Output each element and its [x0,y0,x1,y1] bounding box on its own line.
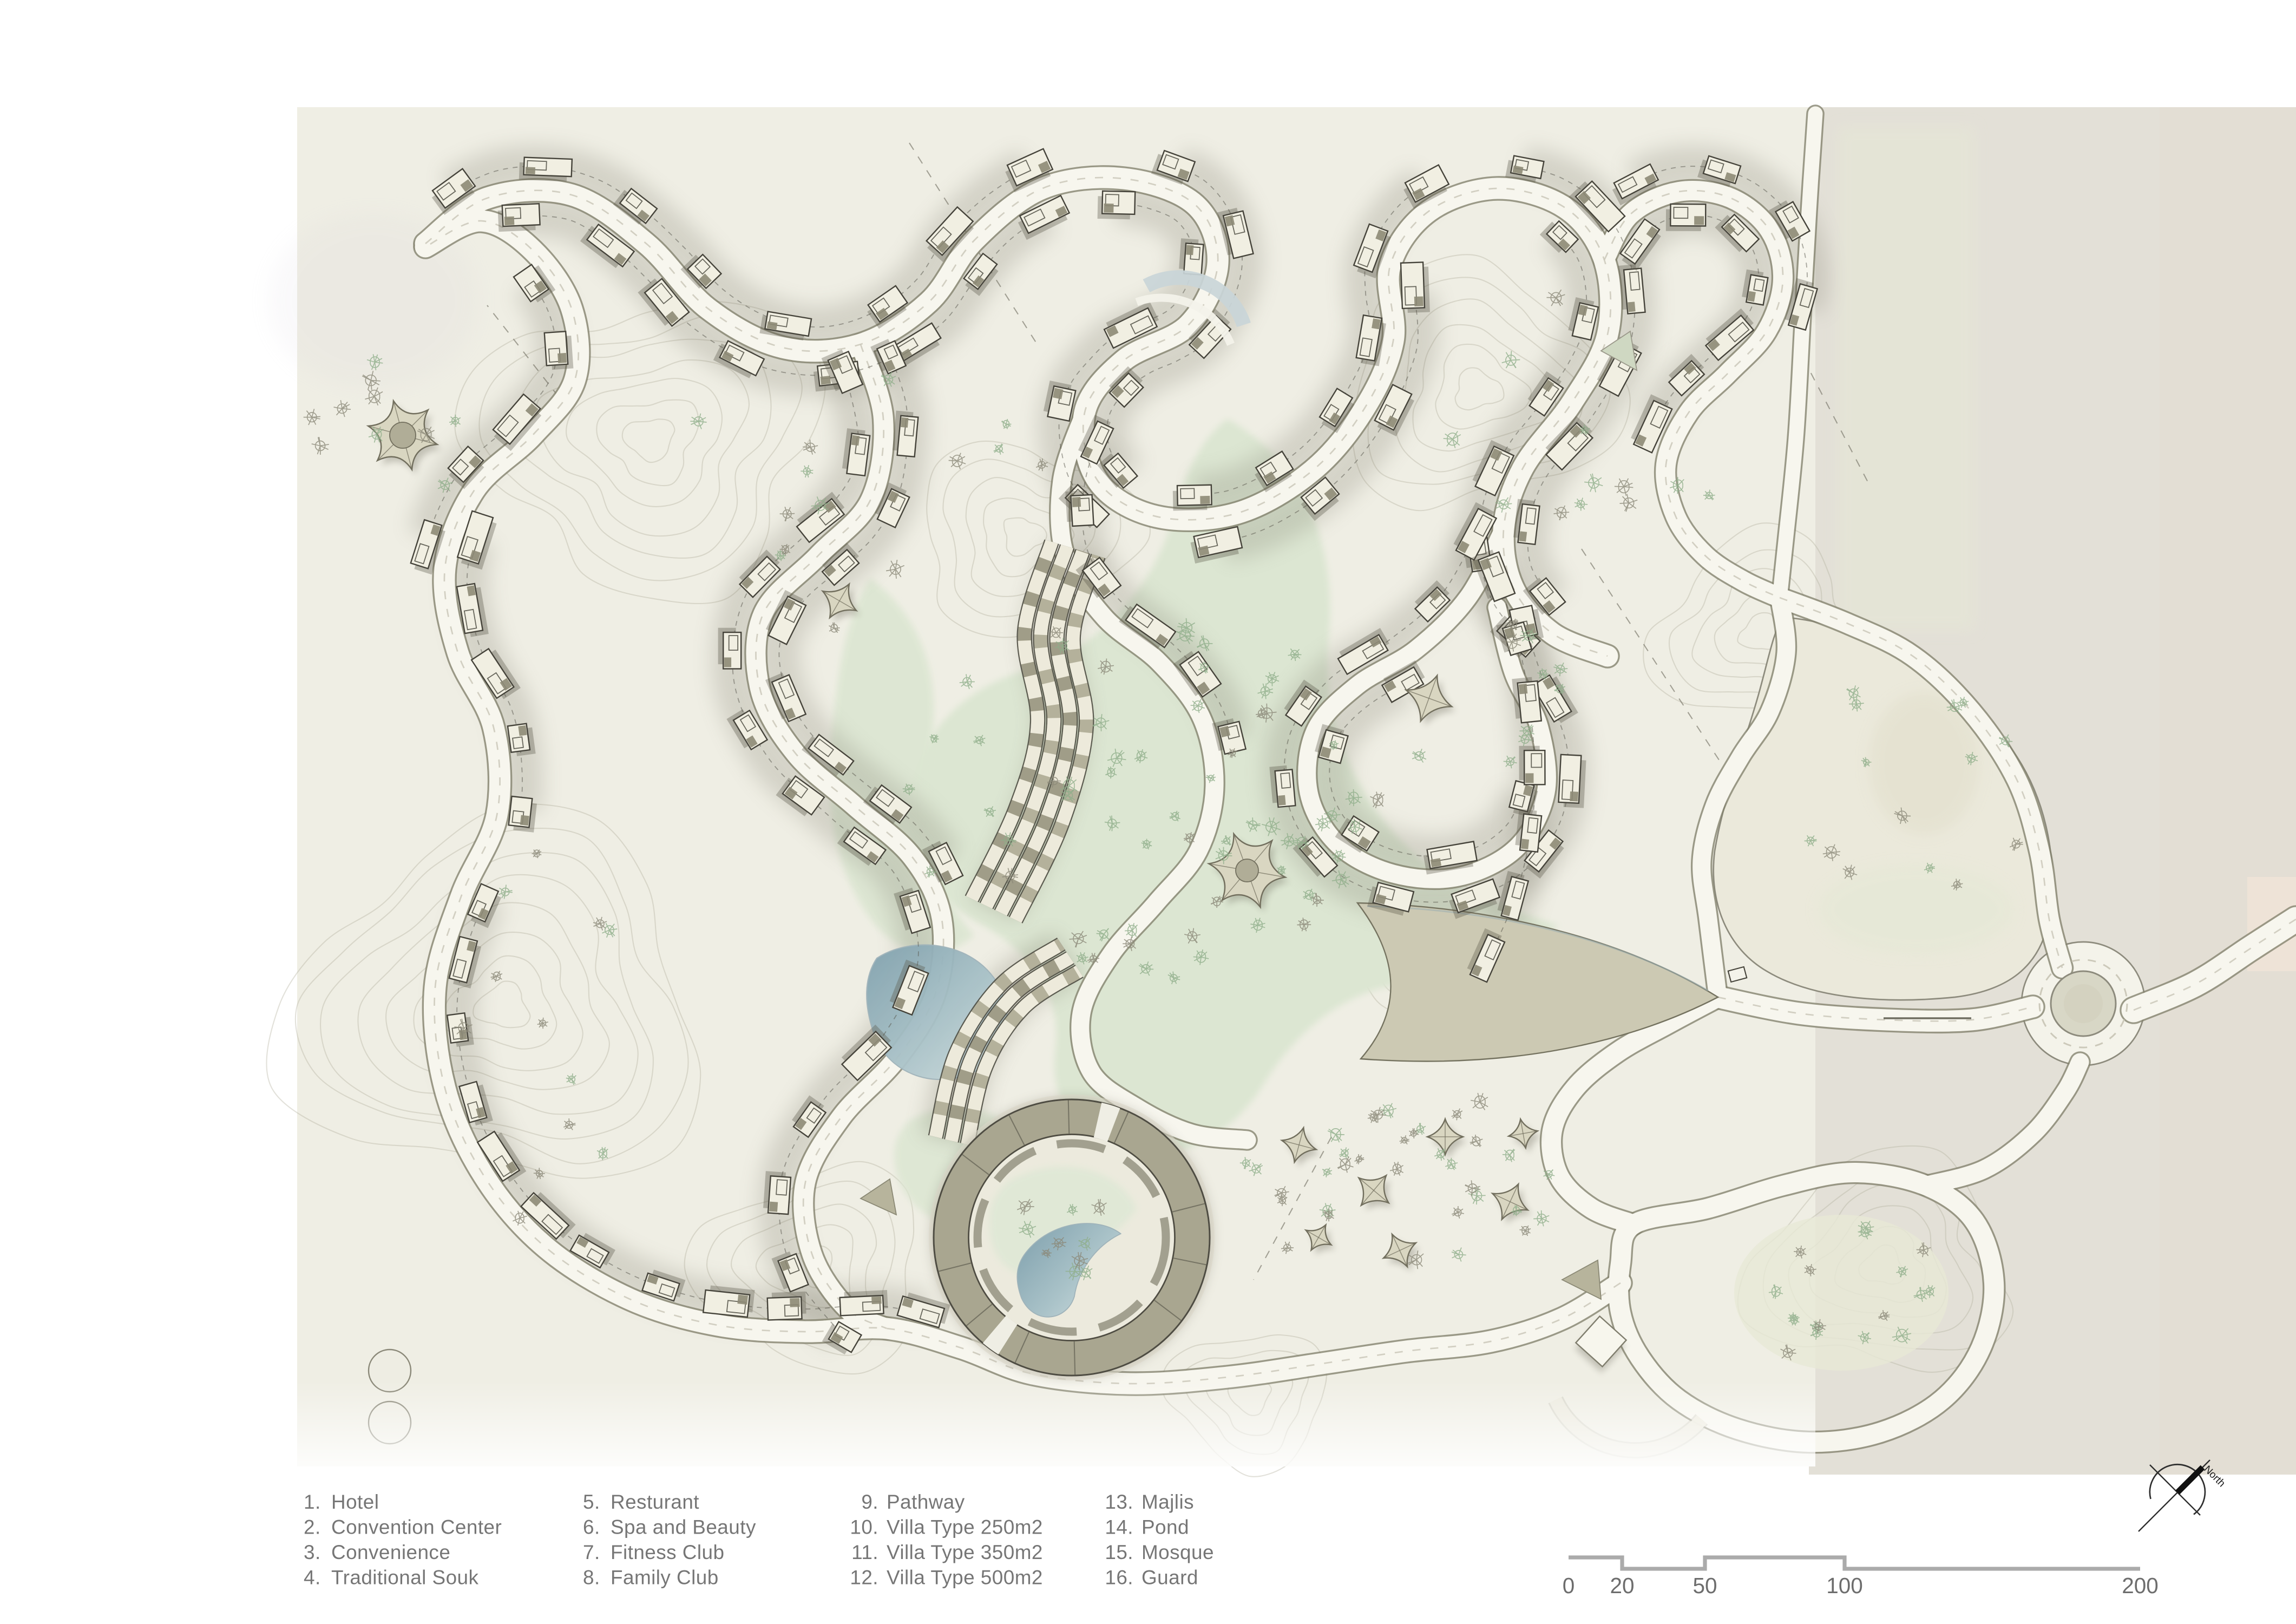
legend-item-number: 4. [304,1567,321,1589]
legend-item-number: 13. [1105,1491,1133,1513]
hotel-circle-building [929,1095,1215,1380]
legend-item-number: 6. [583,1516,600,1538]
legend-item-label: Villa Type 500m2 [887,1567,1043,1589]
villa-porch [871,1296,882,1304]
villa [1558,755,1586,808]
villa [1269,765,1295,808]
villa-porch [1104,204,1113,213]
legend-item-label: Fitness Club [611,1541,724,1563]
site-plan-sheet: 1.Hotel2.Convention Center3.Convenience4… [0,0,2296,1624]
villa-porch [1519,684,1527,694]
scale-label-0: 0 [1563,1573,1575,1598]
villa-porch [1072,497,1081,507]
villa [892,411,919,457]
teardrop-green-wash [1819,864,2013,955]
scale-label-100: 100 [1826,1573,1863,1598]
legend-item-label: Mosque [1142,1541,1214,1563]
legend-item-number: 7. [583,1541,600,1563]
villa-porch [724,657,731,667]
legend-item-label: Spa and Beauty [611,1516,756,1538]
villa [519,157,572,181]
legend-item-number: 5. [583,1491,600,1513]
legend-item-number: 15. [1105,1541,1133,1563]
villa-porch [1628,302,1635,312]
villa-porch [518,725,527,736]
legend-item-label: Majlis [1142,1491,1194,1513]
hotel-ring-gap [1098,1120,1114,1125]
villa-porch [769,1202,778,1212]
villa-porch [1278,795,1285,806]
villa [763,1171,791,1214]
hotel-ring-gap [994,1330,1008,1339]
villa [497,204,540,232]
legend-item-label: Convenience [331,1541,450,1563]
scale-label-50: 50 [1693,1573,1717,1598]
villa-porch [1521,839,1529,849]
tent-center [390,422,416,448]
southeast-knoll [1734,1215,1949,1371]
villa [1098,191,1136,220]
legend-item-label: Family Club [611,1567,719,1589]
villa-porch [526,167,535,174]
legend-item-label: Villa Type 350m2 [887,1541,1043,1563]
villa-porch [1694,216,1704,225]
villa [1512,677,1541,723]
legend-item-number: 16. [1105,1567,1133,1589]
villa [1065,490,1093,526]
legend-item-label: Traditional Souk [331,1567,479,1589]
villa-porch [520,815,529,826]
villa [1666,204,1705,231]
villa [508,723,536,757]
edge-warm-tint [2160,107,2296,1475]
legend-item-number: 14. [1105,1516,1133,1538]
legend-item-number: 11. [851,1541,878,1563]
villa-porch [557,353,567,363]
legend-item-label: Pathway [887,1491,965,1513]
scale-label-200: 200 [2122,1573,2159,1598]
villa-porch [1200,496,1210,504]
sheet-bottom-fade [297,1380,1815,1466]
legend-item-label: Convention Center [331,1516,502,1538]
legend-item-label: Hotel [331,1491,379,1513]
legend-item-label: Guard [1142,1567,1198,1589]
legend-item-number: 9. [861,1491,878,1513]
villa [767,1292,806,1320]
villa [1401,262,1430,313]
scale-label-20: 20 [1610,1573,1634,1598]
legend-item-label: Pond [1142,1516,1189,1538]
villa [545,331,574,370]
villa-porch [1431,858,1441,867]
villa [718,628,742,669]
villa-porch [1525,773,1533,783]
villa [839,1290,888,1315]
villa-porch [1186,245,1193,255]
legend-item-number: 3. [304,1541,321,1563]
villa-porch [1570,791,1578,802]
legend-item-number: 8. [583,1567,600,1589]
villa-porch [1519,531,1527,541]
legend-item-label: Villa Type 250m2 [887,1516,1043,1538]
villa-porch [737,1295,748,1305]
legend-item-label: Resturant [611,1491,699,1513]
tent-center [1236,859,1258,882]
villa-porch [790,1298,800,1307]
villa [1173,485,1212,511]
legend-item-number: 10. [850,1516,878,1538]
villa [1519,746,1545,785]
villa-porch [901,417,908,428]
villa [1618,264,1645,314]
legend-item-number: 1. [304,1491,321,1513]
villa [703,1285,755,1318]
roundabout-island-center [2064,984,2103,1023]
villa-porch [851,435,860,446]
villa [447,1012,474,1047]
villa-porch [820,376,831,385]
villa-porch [504,217,515,225]
villa-porch [1414,296,1423,306]
sage-wash-band [1838,127,1974,630]
legend-item-number: 2. [304,1516,321,1538]
legend-item-number: 12. [850,1567,878,1589]
